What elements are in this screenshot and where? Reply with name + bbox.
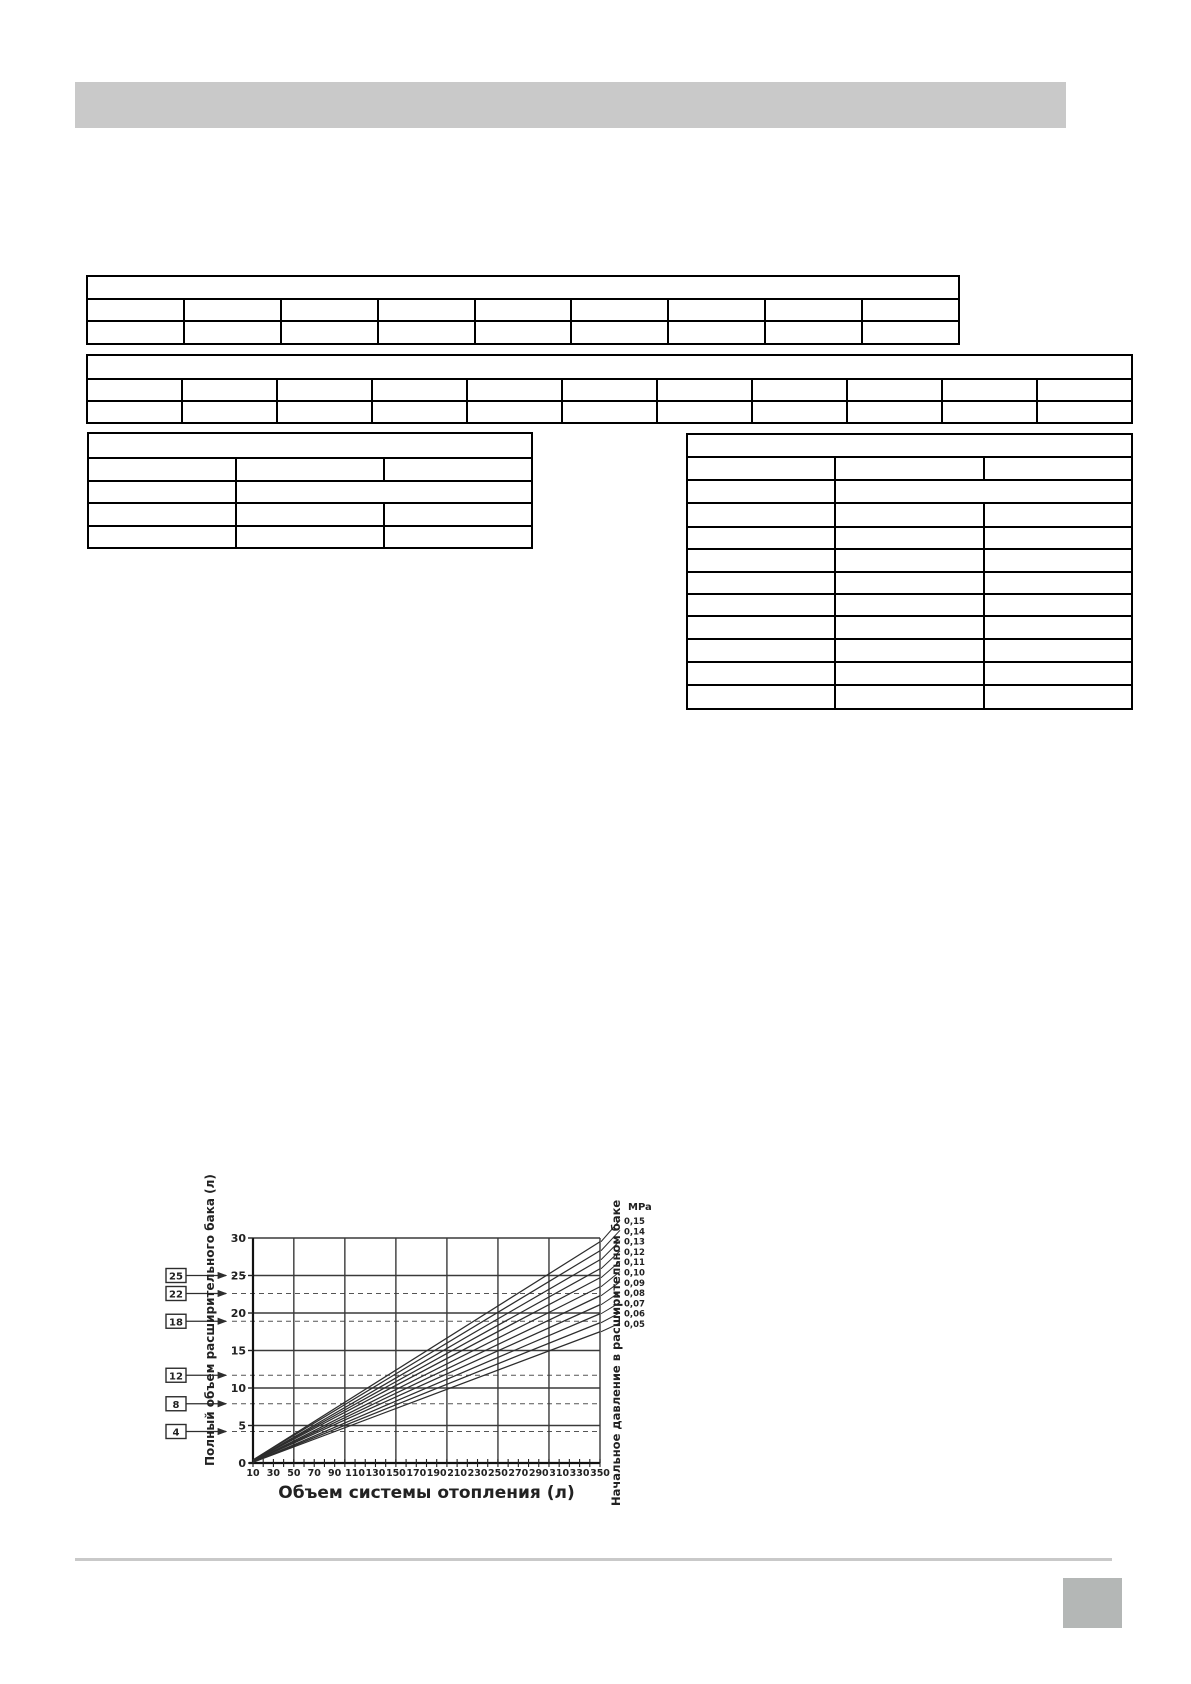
table-cell [984,594,1132,616]
table-cell [88,503,236,526]
pressure-unit-label: MPa [628,1202,652,1213]
pressure-value-label: 0,06 [624,1310,645,1320]
pressure-value-label: 0,12 [624,1248,645,1258]
table-cell [236,503,384,526]
tank-volume-label: 18 [169,1317,183,1328]
table-cell [236,526,384,548]
table-cell [942,379,1037,401]
table-title-cell [687,434,1132,457]
table-cell [687,549,835,572]
table-row [687,527,1132,549]
table-cell [835,457,983,480]
table-row [88,481,532,503]
x-tick-label: 330 [570,1468,590,1479]
x-tick-label: 70 [308,1468,322,1479]
table-row [87,355,1132,379]
pressure-value-label: 0,15 [624,1217,645,1227]
x-axis-title: Объем системы отопления (л) [278,1483,575,1503]
table-cell [835,616,983,639]
table-row [687,616,1132,639]
table-cell [835,549,983,572]
table-row [87,321,959,344]
table-row [88,458,532,481]
table-cell [847,401,942,423]
x-tick-label: 210 [447,1468,467,1479]
table-cell [765,321,862,344]
spec-table-3-left [87,432,533,549]
pressure-value-label: 0,11 [624,1258,645,1268]
x-tick-label: 90 [328,1468,342,1479]
table-cell [984,572,1132,594]
x-tick-label: 30 [267,1468,281,1479]
spec-table-2 [86,354,1133,424]
pressure-value-label: 0,14 [624,1227,645,1237]
table-cell [984,549,1132,572]
table-cell [467,379,562,401]
table-cell [687,594,835,616]
table-row [687,685,1132,709]
document-page: 2522181284MPa0,150,140,130,120,110,100,0… [0,0,1191,1684]
table-cell [668,321,765,344]
table-cell [835,527,983,549]
y-axis-title: Полный объем расширительного бака (л) [203,1174,217,1466]
x-tick-label: 170 [406,1468,426,1479]
table-cell [88,458,236,481]
x-tick-label: 250 [488,1468,508,1479]
pressure-line [253,1278,600,1461]
pressure-value-label: 0,10 [624,1269,645,1279]
table-cell [88,481,236,503]
table-cell [562,379,657,401]
pressure-value-label: 0,08 [624,1289,645,1299]
table-cell [984,639,1132,662]
pressure-value-label: 0,13 [624,1238,645,1248]
x-tick-label: 290 [529,1468,549,1479]
table-cell [668,299,765,321]
y-tick-label: 10 [231,1382,247,1395]
table-cell-merged [835,480,1132,503]
table-cell [657,401,752,423]
table-cell [687,662,835,685]
table-cell [378,321,475,344]
table-cell [657,379,752,401]
y-tick-label: 0 [238,1457,246,1470]
x-tick-label: 270 [508,1468,528,1479]
table-cell [372,379,467,401]
pressure-line [253,1323,600,1463]
table-cell [687,616,835,639]
table-cell [984,503,1132,527]
table-cell [862,299,959,321]
table-cell [88,526,236,548]
table-cell [835,639,983,662]
table-cell [1037,379,1132,401]
table-cell-merged [236,481,532,503]
table-row [88,526,532,548]
table-cell [475,321,572,344]
x-tick-label: 350 [590,1468,610,1479]
table-cell [571,321,668,344]
table-row [87,401,1132,423]
table-cell [687,527,835,549]
pressure-line [253,1296,600,1462]
expansion-chart-svg: 2522181284MPa0,150,140,130,120,110,100,0… [128,1148,673,1510]
y-tick-label: 30 [231,1232,247,1245]
table-cell [236,458,384,481]
tank-volume-label: 25 [169,1272,183,1283]
table-cell [277,401,372,423]
x-tick-label: 150 [386,1468,406,1479]
table-cell [384,503,532,526]
table-cell [835,594,983,616]
table-cell [87,401,182,423]
table-cell [184,321,281,344]
pressure-value-label: 0,07 [624,1299,645,1309]
table-cell [182,401,277,423]
table-cell [87,321,184,344]
y-tick-label: 25 [231,1270,246,1283]
x-tick-label: 230 [468,1468,488,1479]
table-cell [687,572,835,594]
table-cell [835,503,983,527]
footer-page-marker [1063,1578,1122,1628]
table-row [87,276,959,299]
table-cell [835,662,983,685]
y-tick-label: 5 [238,1420,246,1433]
table-row [88,503,532,526]
tank-volume-label: 22 [169,1290,183,1301]
y-tick-label: 20 [231,1307,247,1320]
table-row [687,480,1132,503]
table-row [687,434,1132,457]
x-tick-label: 110 [345,1468,365,1479]
table-cell [942,401,1037,423]
table-row [88,433,532,458]
table-row [687,457,1132,480]
pressure-line [253,1251,600,1460]
tank-volume-label: 8 [173,1400,180,1411]
table-title-cell [87,276,959,299]
tank-volume-label: 12 [169,1371,183,1382]
footer-divider [75,1558,1112,1561]
table-cell [571,299,668,321]
table-cell [752,401,847,423]
table-cell [87,379,182,401]
table-row [687,594,1132,616]
table-row [687,549,1132,572]
x-tick-label: 10 [246,1468,260,1479]
expansion-tank-chart: 2522181284MPa0,150,140,130,120,110,100,0… [128,1148,673,1510]
table-cell [182,379,277,401]
spec-table-1 [86,275,960,345]
right-axis-title: Начальное давление в расширительном баке [609,1200,623,1506]
table-cell [835,572,983,594]
table-row [687,639,1132,662]
table-title-cell [87,355,1132,379]
x-tick-label: 50 [287,1468,301,1479]
pressure-value-label: 0,09 [624,1279,645,1289]
pressure-line [253,1260,600,1461]
table-cell [277,379,372,401]
table-cell [687,639,835,662]
table-cell [984,527,1132,549]
table-cell [687,685,835,709]
table-cell [687,457,835,480]
table-cell [467,401,562,423]
table-cell [765,299,862,321]
table-row [687,503,1132,527]
table-cell [862,321,959,344]
spec-table-4-right [686,433,1133,710]
y-tick-label: 15 [231,1345,246,1358]
table-cell [984,685,1132,709]
table-cell [384,458,532,481]
x-tick-label: 310 [549,1468,569,1479]
table-row [687,662,1132,685]
table-cell [384,526,532,548]
table-cell [984,662,1132,685]
table-cell [184,299,281,321]
tank-volume-label: 4 [173,1428,180,1439]
table-cell [984,616,1132,639]
table-row [87,299,959,321]
table-cell [475,299,572,321]
table-cell [835,685,983,709]
table-cell [687,503,835,527]
pressure-value-label: 0,05 [624,1320,645,1330]
table-cell [281,321,378,344]
table-cell [984,457,1132,480]
pressure-line [253,1305,600,1462]
table-cell [87,299,184,321]
table-cell [687,480,835,503]
x-tick-label: 130 [366,1468,386,1479]
header-bar [75,82,1066,128]
table-cell [847,379,942,401]
table-cell [1037,401,1132,423]
table-cell [562,401,657,423]
table-title-cell [88,433,532,458]
table-cell [372,401,467,423]
table-cell [378,299,475,321]
table-row [87,379,1132,401]
table-cell [752,379,847,401]
x-tick-label: 190 [427,1468,447,1479]
table-cell [281,299,378,321]
table-row [687,572,1132,594]
